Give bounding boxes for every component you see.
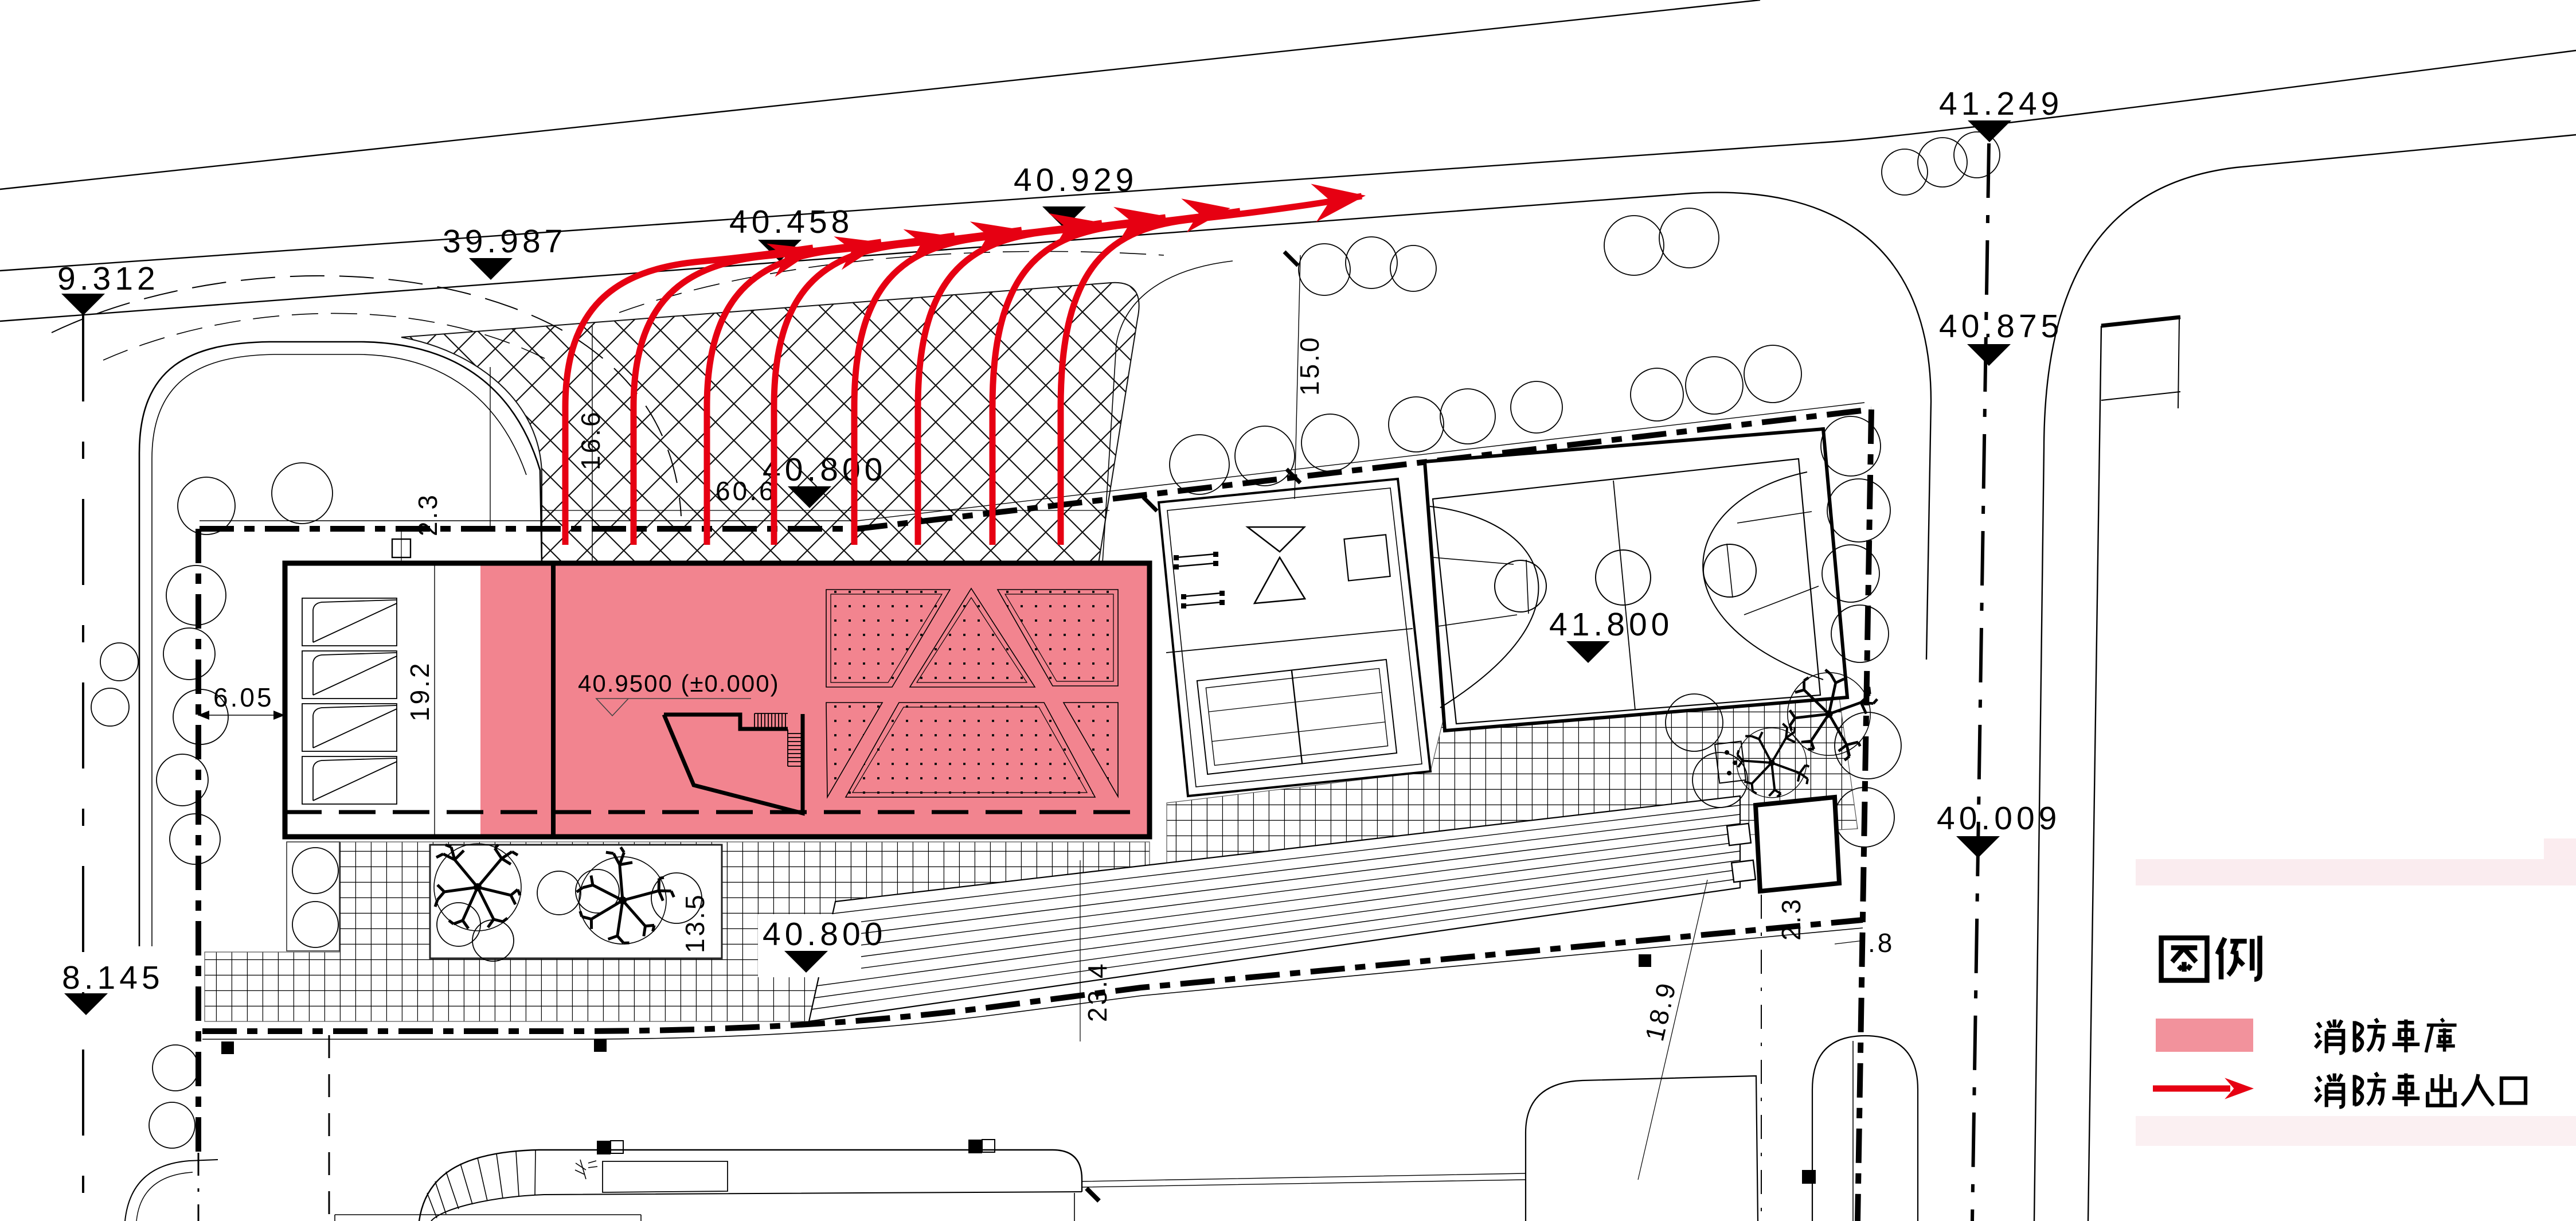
svg-text:40.800: 40.800 xyxy=(763,916,886,953)
svg-text:40.875: 40.875 xyxy=(1939,308,2063,345)
svg-text:23.4: 23.4 xyxy=(1082,961,1112,1022)
svg-text:8.145: 8.145 xyxy=(62,959,164,996)
svg-text:40.800: 40.800 xyxy=(763,451,886,488)
svg-text:16.6: 16.6 xyxy=(576,409,605,470)
svg-text:6.05: 6.05 xyxy=(213,682,274,712)
svg-text:19.2: 19.2 xyxy=(405,661,435,721)
svg-text:9.312: 9.312 xyxy=(57,260,159,297)
svg-text:60.6: 60.6 xyxy=(716,476,776,506)
svg-text:39.987: 39.987 xyxy=(443,223,566,260)
svg-text:15.0: 15.0 xyxy=(1295,335,1324,396)
svg-text:41.800: 41.800 xyxy=(1549,606,1673,643)
svg-text:41.249: 41.249 xyxy=(1939,85,2063,122)
svg-text:13.5: 13.5 xyxy=(680,892,710,953)
svg-text:40.458: 40.458 xyxy=(729,204,853,240)
svg-text:2.3: 2.3 xyxy=(413,493,443,536)
svg-text:40.009: 40.009 xyxy=(1937,800,2061,837)
svg-text:2.3: 2.3 xyxy=(1776,897,1806,941)
svg-text:40.9500 (±0.000): 40.9500 (±0.000) xyxy=(578,670,780,697)
svg-text:.8: .8 xyxy=(1868,928,1894,958)
svg-text:40.929: 40.929 xyxy=(1014,162,1137,198)
